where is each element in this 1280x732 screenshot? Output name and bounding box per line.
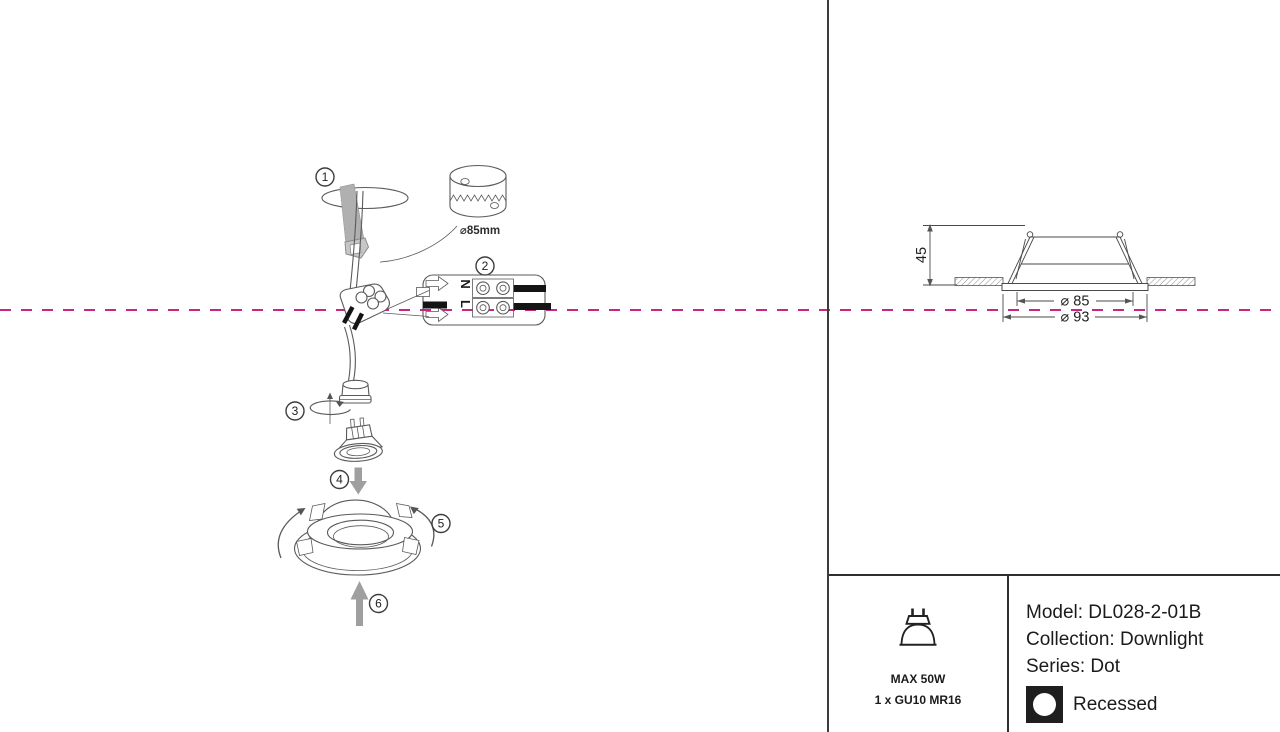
svg-text:3: 3 xyxy=(292,404,299,418)
series-label: Series: Dot xyxy=(1026,653,1280,680)
mounting-label: Recessed xyxy=(1073,694,1158,716)
installation-steps-diagram: ⌀85mm 1 2 N L xyxy=(0,0,828,732)
step4-insert: 4 xyxy=(331,468,368,495)
step2-wiring: 2 N L xyxy=(340,257,551,330)
outer-diameter-label: ⌀ 93 xyxy=(1061,310,1090,326)
hole-saw-icon xyxy=(450,166,506,218)
lamp-type-label: 1 x GU10 MR16 xyxy=(875,693,962,707)
wire-direction-arrow-bottom xyxy=(426,308,448,322)
mounting-row: Recessed xyxy=(1026,686,1280,723)
terminal-block: N L xyxy=(417,275,552,325)
cutout-diameter-label: ⌀ 85 xyxy=(1061,294,1090,310)
lamp-socket xyxy=(340,380,372,403)
step6-push-up: 6 xyxy=(351,581,388,626)
fixture-cross-section xyxy=(1002,232,1148,291)
spec-panel: MAX 50W 1 x GU10 MR16 Model: DL028-2-01B… xyxy=(829,574,1280,732)
wire-connector xyxy=(340,284,389,329)
instruction-sheet: ⌀85mm 1 2 N L xyxy=(0,0,1280,732)
height-label: 45 xyxy=(914,247,930,263)
svg-text:4: 4 xyxy=(336,473,343,487)
recessed-icon xyxy=(1026,686,1063,723)
max-power-label: MAX 50W xyxy=(891,672,946,686)
down-arrow xyxy=(350,468,368,495)
step-badge-4: 4 xyxy=(331,471,349,489)
step-badge-6: 6 xyxy=(370,595,388,613)
step1-cut-hole: ⌀85mm 1 xyxy=(316,166,506,292)
product-info-cell: Model: DL028-2-01B Collection: Downlight… xyxy=(1009,576,1280,732)
lamp-spec-cell: MAX 50W 1 x GU10 MR16 xyxy=(829,576,1009,732)
step-badge-5: 5 xyxy=(432,515,450,533)
step-badge-3: 3 xyxy=(286,402,304,420)
svg-text:2: 2 xyxy=(482,259,489,273)
svg-text:1: 1 xyxy=(322,170,329,184)
lamp-cord xyxy=(345,325,356,381)
hole-saw-size-label: ⌀85mm xyxy=(460,225,500,237)
terminal-label-n: N xyxy=(458,279,473,288)
recessed-icon-dot xyxy=(1033,693,1056,716)
step-badge-1: 1 xyxy=(316,168,334,186)
svg-text:6: 6 xyxy=(375,597,382,611)
collection-label: Collection: Downlight xyxy=(1026,626,1280,653)
hole-saw-leader xyxy=(380,226,457,262)
step-badge-2: 2 xyxy=(476,257,494,275)
step3-socket: 3 xyxy=(286,380,371,424)
up-arrow xyxy=(351,581,369,626)
gu10-bulb-icon xyxy=(332,417,383,463)
terminal-label-l: L xyxy=(458,300,473,308)
ceiling-hole xyxy=(322,188,408,209)
dimension-cutout: ⌀ 85 xyxy=(1017,292,1133,310)
model-label: Model: DL028-2-01B xyxy=(1026,599,1280,626)
downlight-fixture xyxy=(295,500,421,575)
gu10-lamp-icon xyxy=(899,607,937,649)
svg-text:5: 5 xyxy=(438,517,445,531)
technical-drawing: 45 ⌀ 85 ⌀ 93 xyxy=(828,0,1280,575)
